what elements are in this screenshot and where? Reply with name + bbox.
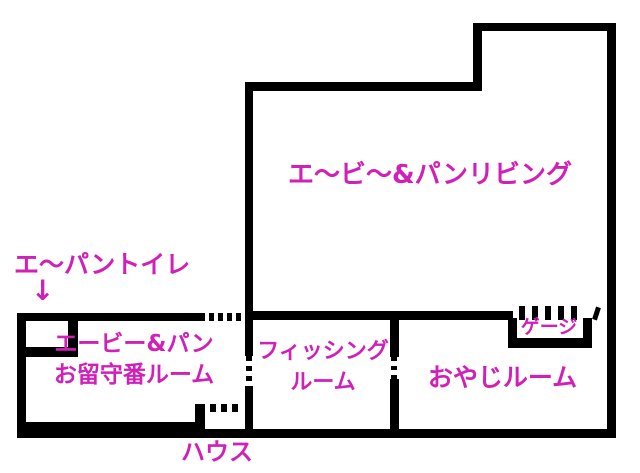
wall-mid-lower: [245, 386, 253, 429]
fishing-room-label-line1: フィッシング: [253, 336, 393, 367]
wall-living-notch: [473, 23, 482, 91]
absence-room-label: エービー&パン お留守番ルーム: [28, 329, 240, 391]
living-room-label: エ〜ビ〜&パンリビング: [250, 160, 610, 191]
down-arrow-icon: ↓: [31, 274, 54, 308]
floor-plan: エ〜ビ〜&パンリビング エ〜パントイレ ↓ エービー&パン お留守番ルーム フィ…: [0, 0, 640, 473]
house-label: ハウス: [181, 438, 253, 467]
leftroom-top-door-dashes: [209, 313, 242, 321]
mid-door-dashes: [246, 356, 252, 382]
wall-right-outer: [607, 23, 616, 438]
wall-leftroom-top: [17, 313, 205, 321]
wall-house-left: [195, 404, 205, 429]
fishing-room-label-line2: ルーム: [253, 367, 393, 398]
house-top-dashes: [210, 404, 240, 412]
wall-leftroom-bottom: [17, 422, 195, 430]
absence-room-label-line2: お留守番ルーム: [28, 360, 240, 391]
wall-living-top-right: [473, 23, 616, 31]
wall-bottom-outer: [17, 429, 616, 438]
wall-living-left: [245, 82, 253, 322]
wall-mid-upper: [245, 322, 253, 356]
cage-label: ゲージ: [511, 316, 587, 339]
fishing-room-label: フィッシング ルーム: [253, 336, 393, 398]
wall-leftroom-left: [17, 313, 26, 438]
wall-cage-bottom: [508, 338, 592, 348]
wall-living-bottom: [245, 311, 513, 320]
wall-living-top-left: [245, 82, 482, 91]
absence-room-label-line1: エービー&パン: [28, 329, 240, 360]
cage-top-tick: [592, 307, 601, 321]
oyaji-room-label: おやじルーム: [400, 363, 605, 393]
